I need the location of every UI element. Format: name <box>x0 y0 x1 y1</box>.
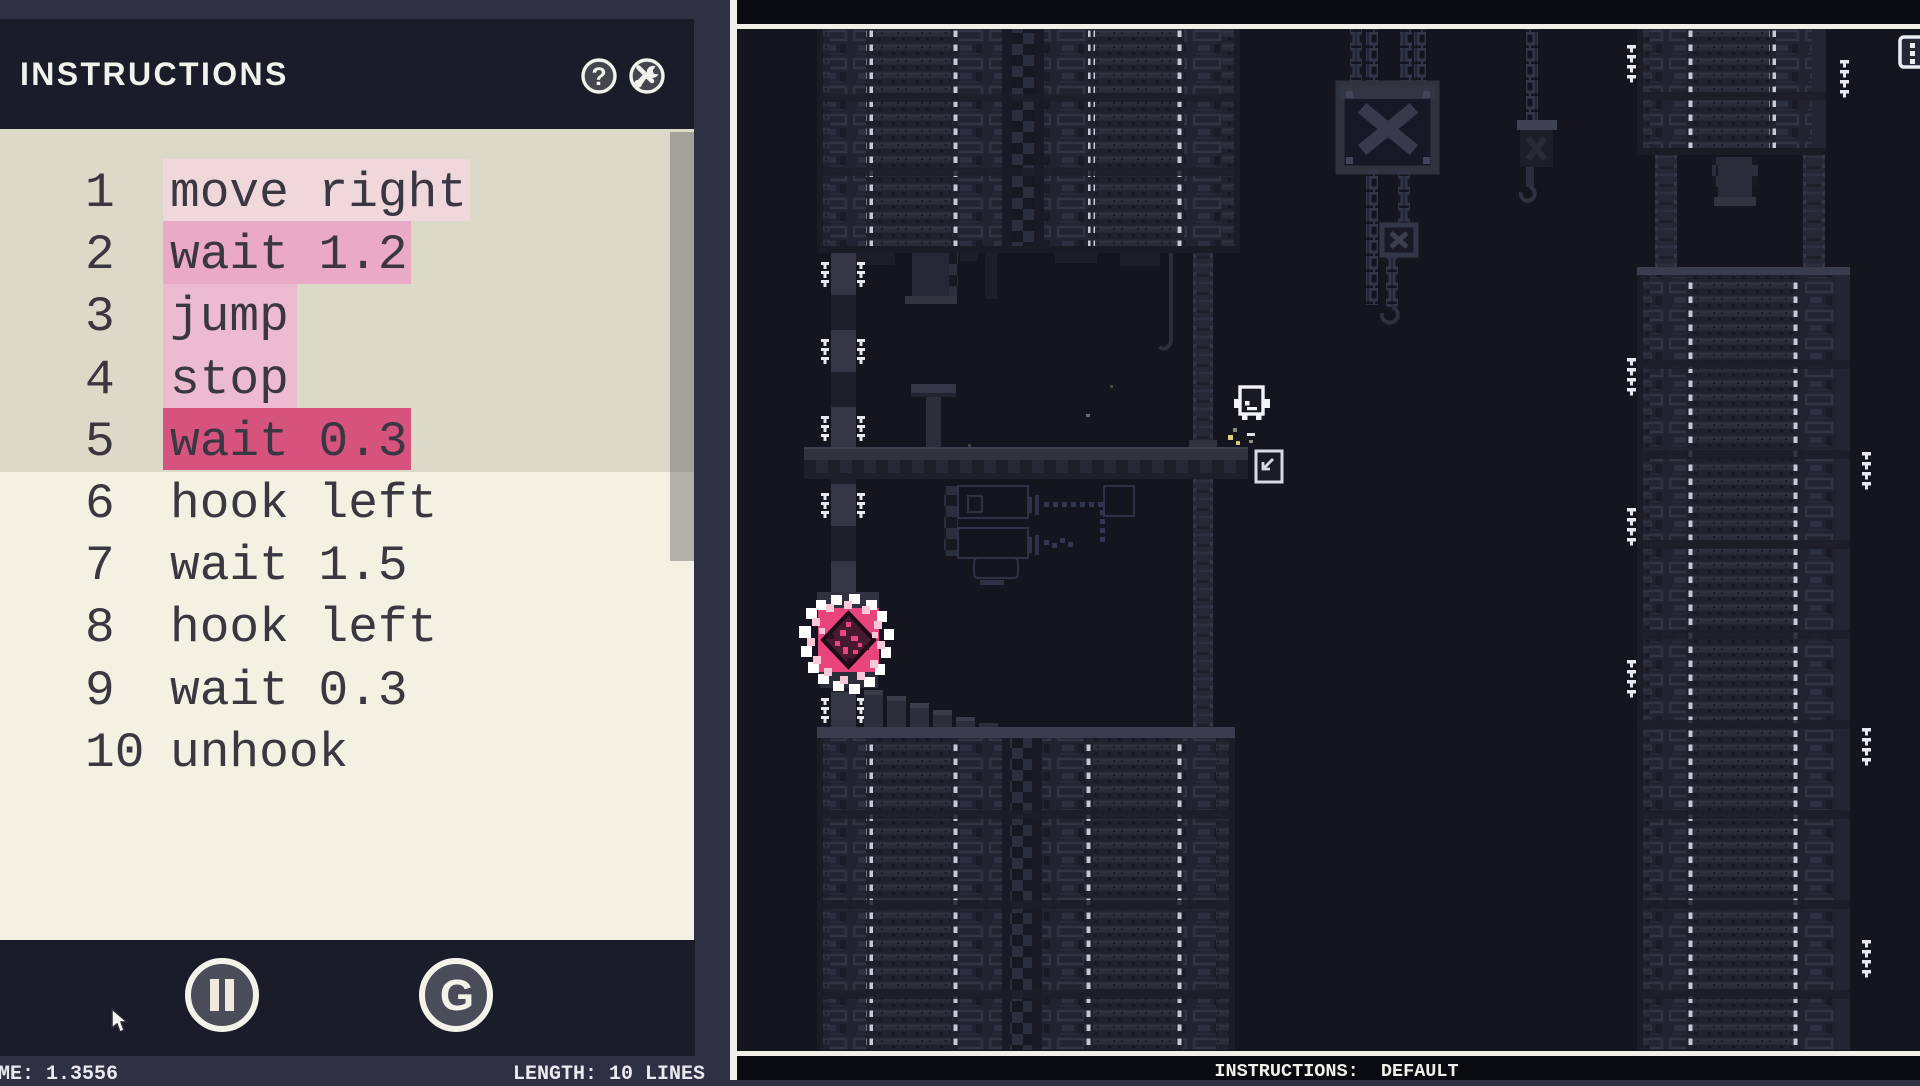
svg-text:?: ? <box>591 63 606 91</box>
svg-text:G: G <box>440 971 474 1020</box>
